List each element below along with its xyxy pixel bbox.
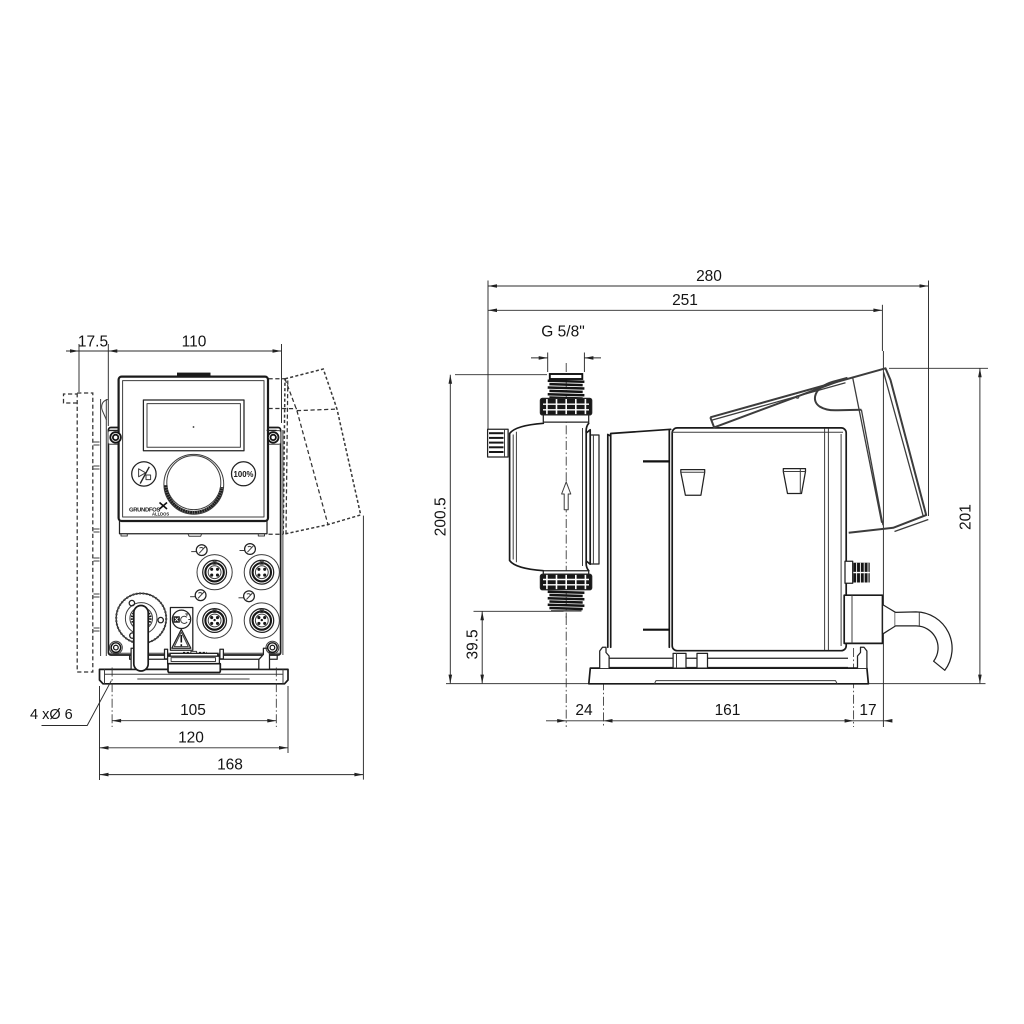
svg-text:100%: 100% <box>234 470 254 479</box>
svg-text:4 xØ 6: 4 xØ 6 <box>30 707 73 723</box>
svg-text:161: 161 <box>715 702 741 719</box>
svg-text:280: 280 <box>696 268 722 285</box>
svg-text:251: 251 <box>672 292 698 309</box>
svg-text:39.5: 39.5 <box>465 629 482 659</box>
svg-text:200.5: 200.5 <box>433 497 450 536</box>
svg-text:17.5: 17.5 <box>78 334 108 351</box>
svg-text:201: 201 <box>958 504 975 530</box>
svg-text:ALLDOS: ALLDOS <box>152 512 169 517</box>
svg-text:105: 105 <box>180 702 206 719</box>
svg-text:G 5/8": G 5/8" <box>541 324 584 341</box>
svg-text:110: 110 <box>182 334 207 351</box>
svg-text:168: 168 <box>217 756 243 773</box>
svg-text:24: 24 <box>575 702 593 719</box>
svg-text:120: 120 <box>178 729 204 746</box>
svg-text:17: 17 <box>859 702 876 719</box>
